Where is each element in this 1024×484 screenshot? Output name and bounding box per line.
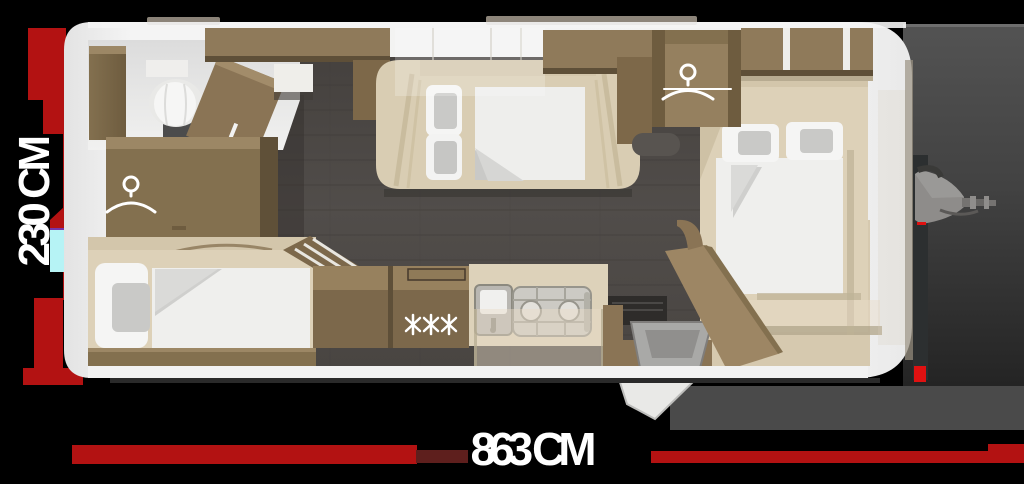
svg-text:230 CM: 230 CM [10, 138, 59, 267]
svg-text:863 CM: 863 CM [470, 423, 594, 475]
